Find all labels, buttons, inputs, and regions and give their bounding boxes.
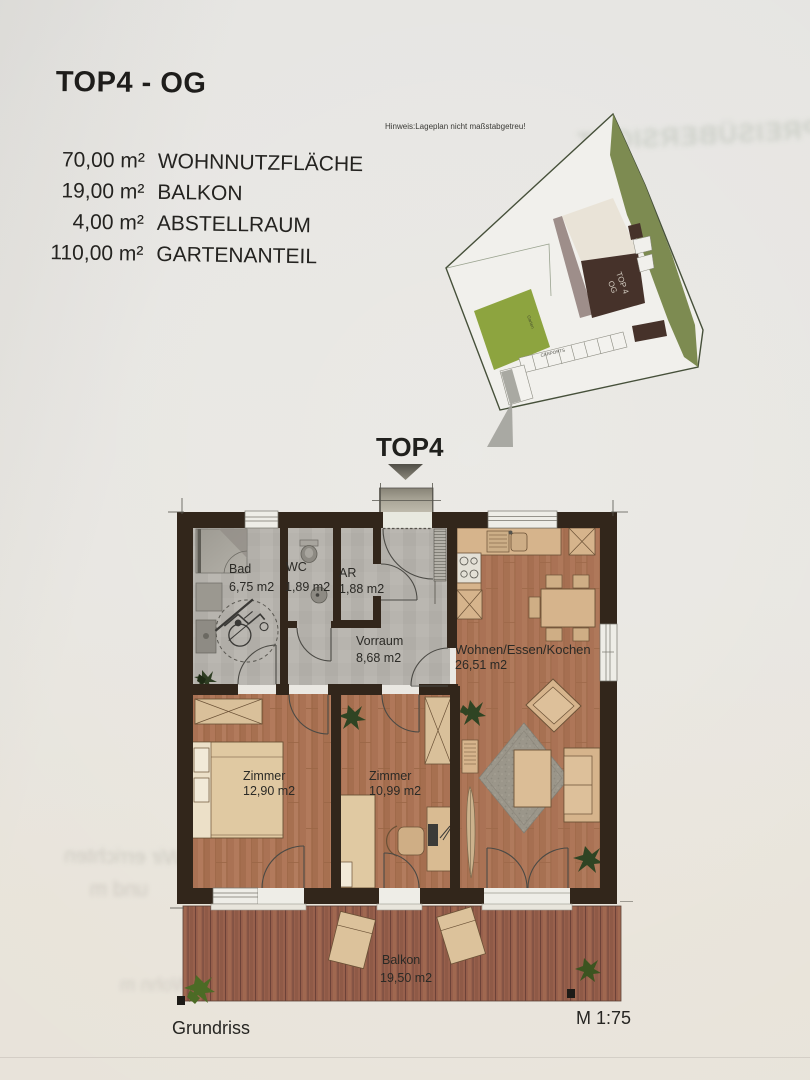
- svg-text:Zimmer: Zimmer: [243, 769, 285, 783]
- svg-text:TOP4: TOP4: [376, 432, 444, 462]
- svg-text:19,50 m2: 19,50 m2: [380, 971, 432, 985]
- svg-text:Bad: Bad: [229, 562, 251, 576]
- svg-text:1,88 m2: 1,88 m2: [339, 582, 384, 596]
- svg-text:1,89 m2: 1,89 m2: [285, 580, 330, 594]
- svg-text:26,51 m2: 26,51 m2: [455, 658, 507, 672]
- svg-text:WC: WC: [286, 560, 307, 574]
- svg-text:8,68 m2: 8,68 m2: [356, 651, 401, 665]
- svg-text:10,99 m2: 10,99 m2: [369, 784, 421, 798]
- svg-text:AR: AR: [339, 566, 356, 580]
- svg-text:Balkon: Balkon: [382, 953, 420, 967]
- svg-text:Zimmer: Zimmer: [369, 769, 411, 783]
- svg-text:12,90 m2: 12,90 m2: [243, 784, 295, 798]
- svg-text:6,75 m2: 6,75 m2: [229, 580, 274, 594]
- svg-text:Vorraum: Vorraum: [356, 634, 403, 648]
- svg-text:Wohnen/Essen/Kochen: Wohnen/Essen/Kochen: [455, 642, 591, 657]
